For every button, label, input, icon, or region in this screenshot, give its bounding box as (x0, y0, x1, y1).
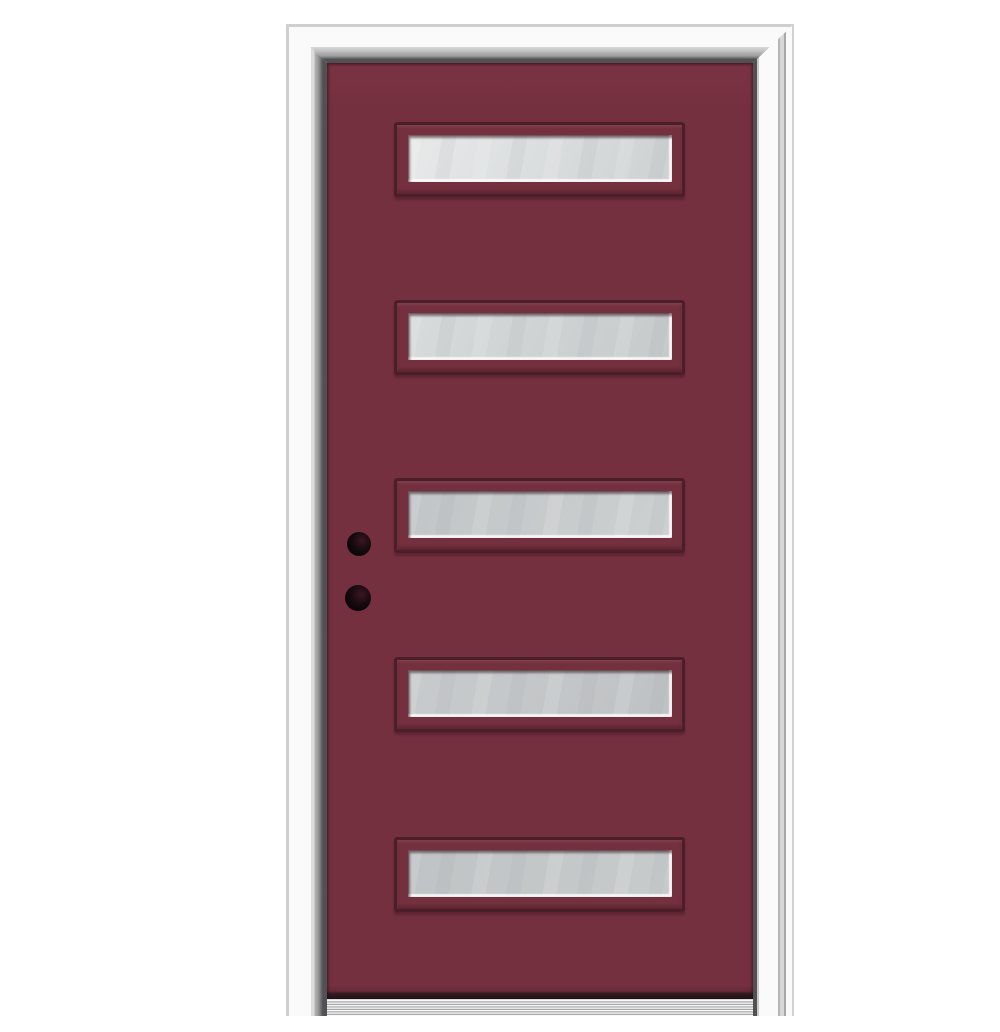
frosted-glass-pane-1 (408, 135, 672, 182)
frosted-glass-pane-3 (408, 491, 672, 538)
door-product-photo (40, 16, 1000, 1016)
door-frame-top-casing (286, 24, 794, 63)
glass-lite-2 (394, 300, 685, 375)
frosted-glass-pane-4 (408, 670, 672, 717)
lockset-bore-hole (345, 585, 371, 611)
deadbolt-bore-hole (347, 532, 371, 556)
frosted-glass-pane-2 (408, 313, 672, 360)
door-frame-right-casing (753, 24, 794, 1016)
glass-lite-5 (394, 837, 685, 912)
door-slab (327, 63, 753, 999)
frosted-glass-pane-5 (408, 850, 672, 897)
glass-lite-3 (394, 478, 685, 553)
aluminum-sill (327, 999, 753, 1016)
door-frame-left-casing (286, 24, 327, 1016)
glass-lite-1 (394, 122, 685, 197)
glass-lite-4 (394, 657, 685, 732)
